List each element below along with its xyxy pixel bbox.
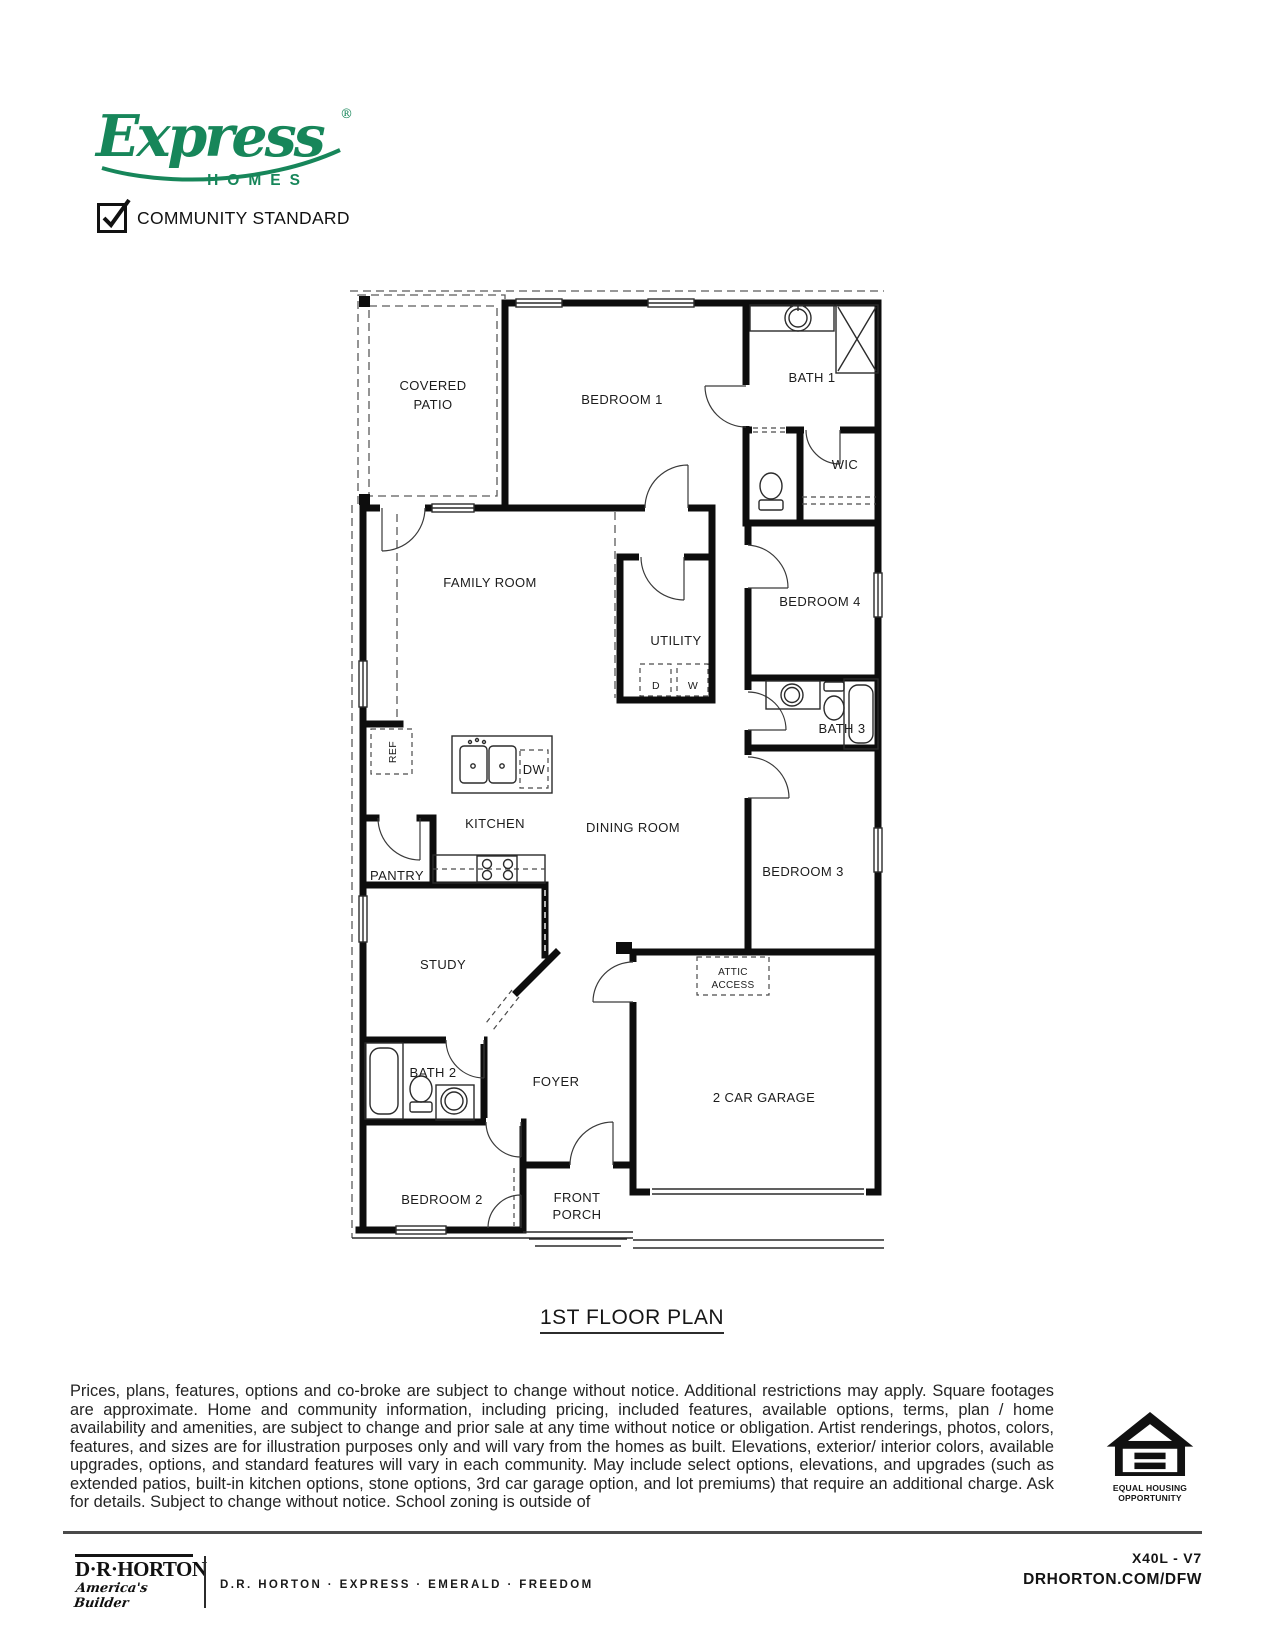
room-label-bedroom-1: BEDROOM 1 [581,392,663,407]
eho-text-line2: OPPORTUNITY [1097,1494,1203,1504]
checkbox-icon [97,203,127,233]
floor-plan: COVERED PATIO BEDROOM 1 BATH 1 WIC FAMIL… [335,270,893,1260]
footer-vertical-divider [204,1556,206,1608]
room-label-bath-2: BATH 2 [410,1065,457,1080]
bath1-fixtures [750,305,878,510]
plan-code: X40L - V7 [1132,1550,1202,1566]
room-label-bedroom-2: BEDROOM 2 [401,1192,483,1207]
room-label-bath-1: BATH 1 [789,370,836,385]
room-label-study: STUDY [420,957,466,972]
room-label-garage: 2 CAR GARAGE [713,1090,815,1105]
appliance-label-ref: REF [387,741,399,763]
plan-title: 1ST FLOOR PLAN [540,1306,724,1334]
express-homes-logo-art: Express ® HOMES [88,92,368,197]
registered-mark: ® [340,107,353,122]
room-label-family-room: FAMILY ROOM [443,575,537,590]
room-label-bath-3: BATH 3 [819,721,866,736]
room-label-foyer: FOYER [533,1074,580,1089]
room-label-covered-patio-2: PATIO [413,397,452,412]
room-label-wic: WIC [832,457,858,472]
label-attic-access-2: ACCESS [712,980,755,991]
room-label-dining-room: DINING ROOM [586,820,680,835]
express-homes-logo: Express ® HOMES [88,92,368,197]
logo-script-text: Express [94,103,325,170]
equal-housing-logo: EQUAL HOUSING OPPORTUNITY [1097,1412,1203,1503]
footer-divider [63,1531,1202,1534]
room-label-front-porch-2: PORCH [553,1207,602,1222]
ceiling-break-lines [397,512,615,718]
label-attic-access: ATTIC [718,967,748,978]
checkmark-icon [98,196,132,230]
equal-housing-icon [1106,1412,1194,1476]
appliance-label-washer: W [688,680,698,692]
disclaimer-text: Prices, plans, features, options and co-… [70,1382,1054,1512]
footer-brand-list: D.R. HORTON · EXPRESS · EMERALD · FREEDO… [220,1579,594,1591]
logo-sub-text: HOMES [207,172,309,189]
community-standard-label: COMMUNITY STANDARD [137,208,350,229]
website-link[interactable]: DRHORTON.COM/DFW [1023,1571,1202,1589]
appliance-label-dishwasher: DW [523,762,546,777]
drhorton-logo-name: D·R·HORTON [75,1558,197,1581]
room-label-bedroom-4: BEDROOM 4 [779,594,861,609]
room-label-covered-patio: COVERED [399,378,466,393]
room-label-front-porch: FRONT [554,1190,601,1205]
room-label-kitchen: KITCHEN [465,816,525,831]
drhorton-logo-tagline: America's Builder [73,1581,199,1611]
community-standard-row: COMMUNITY STANDARD [97,203,350,233]
room-label-pantry: PANTRY [370,868,424,883]
appliance-label-dryer: D [652,680,660,692]
bath2-fixtures [365,1043,474,1120]
drhorton-logo: D·R·HORTON America's Builder [75,1554,197,1611]
room-label-bedroom-3: BEDROOM 3 [762,864,844,879]
room-label-utility: UTILITY [650,633,701,648]
